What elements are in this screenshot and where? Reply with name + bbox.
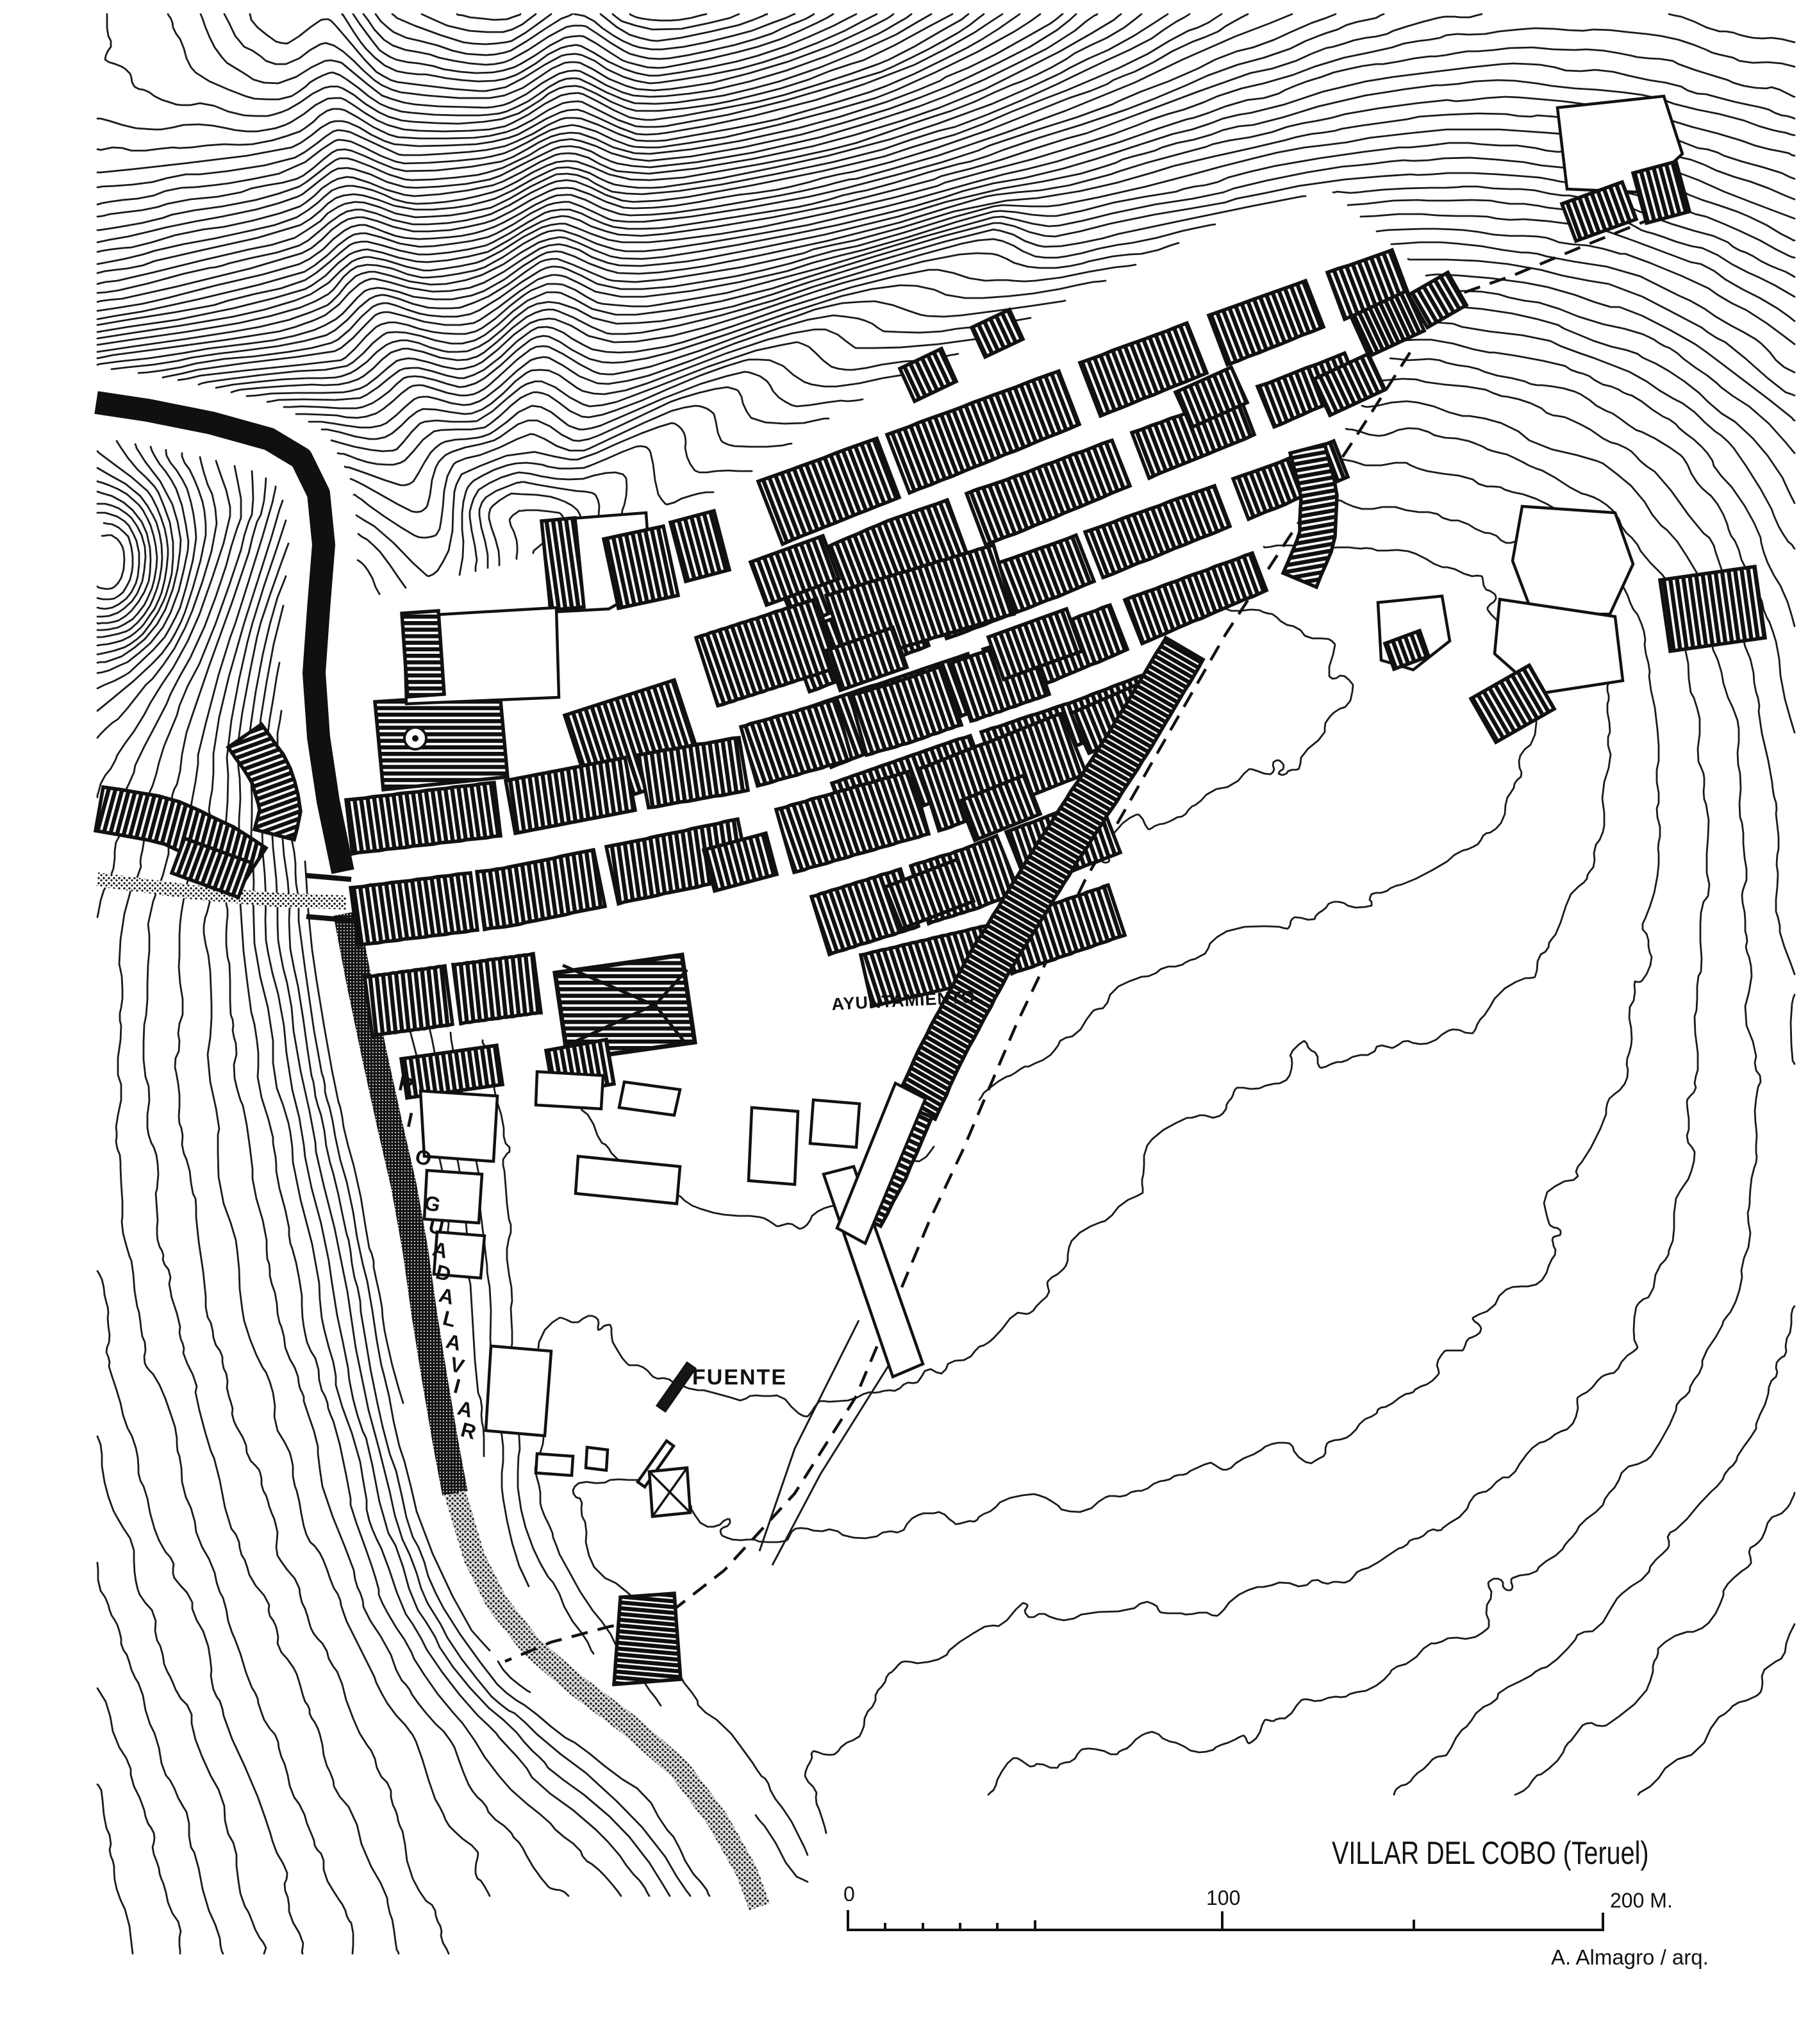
- svg-text:A. Almagro / arq.: A. Almagro / arq.: [1551, 1945, 1709, 1969]
- svg-text:200 M.: 200 M.: [1610, 1889, 1673, 1912]
- svg-text:VILLAR DEL COBO (Teruel): VILLAR DEL COBO (Teruel): [1332, 1835, 1649, 1872]
- svg-text:100: 100: [1206, 1886, 1240, 1909]
- svg-text:FUENTE: FUENTE: [692, 1365, 787, 1390]
- svg-text:0: 0: [843, 1882, 855, 1906]
